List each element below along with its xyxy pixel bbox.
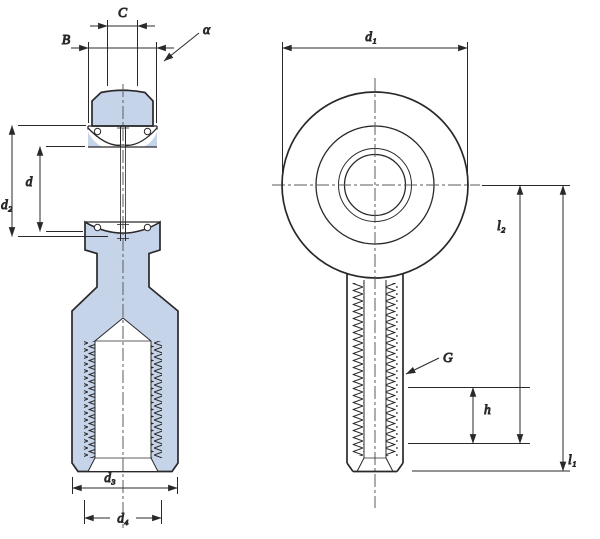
dim-center-to-thread: l₂ <box>497 186 520 444</box>
staking-dimple-left <box>94 128 100 134</box>
rod-end-drawing: C B α d d₂ <box>0 0 600 539</box>
thread-profile-right <box>151 341 162 458</box>
dim-thread-length: h <box>473 388 491 444</box>
dim-bore: d <box>26 147 85 232</box>
dim-label-bore: d <box>26 174 33 189</box>
dim-label-tilt-angle: α <box>203 22 211 37</box>
dim-label-shank-dia: d₃ <box>104 470 116 485</box>
dim-label-thread-od: d₄ <box>117 511 129 526</box>
dim-total-length: l₁ <box>563 186 576 472</box>
dim-label-total-length: l₁ <box>568 452 576 467</box>
dim-label-head-dia: d₁ <box>365 29 376 44</box>
dim-width-inner: C <box>90 5 155 86</box>
dim-label-thread-length: h <box>484 402 491 417</box>
dim-label-thread: G <box>443 350 453 365</box>
dim-label-width-outer: B <box>62 32 70 47</box>
dim-label-sphere: d₂ <box>1 197 13 212</box>
dim-shank-dia: d₃ <box>73 470 178 494</box>
thread-profile-left <box>84 341 95 458</box>
dim-tilt-angle: α <box>164 22 211 61</box>
thread-profile-side-left <box>353 283 365 456</box>
staking-dimple-right-2 <box>144 224 150 230</box>
dim-label-width-inner: C <box>118 5 128 20</box>
thread-profile-side-right <box>386 283 398 456</box>
side-view: d₁ G l₂ h l₁ <box>272 29 576 508</box>
technical-drawing-canvas: C B α d d₂ <box>0 0 600 539</box>
body-with-shank <box>72 222 178 472</box>
section-view: C B α d d₂ <box>1 5 211 528</box>
staking-dimple-right <box>144 128 150 134</box>
dim-thread-leader: G <box>406 350 453 374</box>
dim-label-center-to-thread: l₂ <box>497 218 506 233</box>
staking-dimple-left-2 <box>94 224 100 230</box>
